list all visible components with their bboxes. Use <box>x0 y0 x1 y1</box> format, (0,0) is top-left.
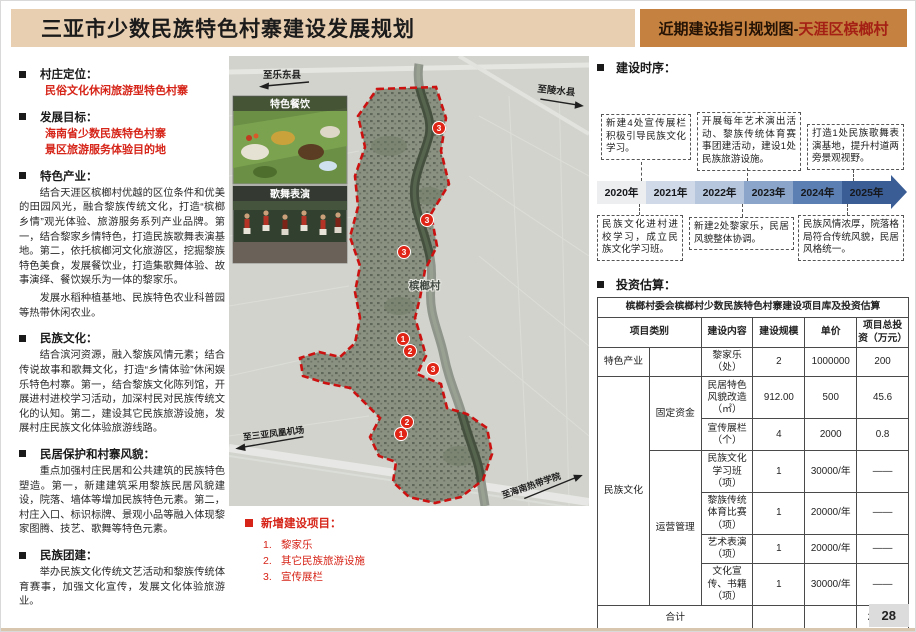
inset-photo-dance: 歌舞表演 <box>233 186 347 263</box>
connector-line <box>853 170 854 181</box>
table-row: 民族文化 固定资金 民居特色风貌改造（㎡） 912.00 500 45.6 <box>598 377 909 419</box>
svg-text:1: 1 <box>399 429 404 439</box>
cell-content: 黎族传统体育比赛（项） <box>701 493 753 535</box>
positioning-highlight: 民俗文化休闲旅游型特色村寨 <box>45 84 225 100</box>
year-segment: 2022年 <box>695 181 744 204</box>
col-header-unit: 单价 <box>805 318 857 348</box>
year-segment: 2025年 <box>842 181 891 204</box>
header-left-band: 三亚市少数民族特色村寨建设发展规划 <box>11 9 635 47</box>
aerial-map-canvas: 至乐东县 至陵水县 至三亚凤凰机场 至海南热带学院 槟榔村 <box>229 56 589 506</box>
header-right-prefix: 近期建设指引规划图- <box>658 18 798 39</box>
appearance-paragraph: 重点加强村庄民居和公共建筑的民族特色塑造。第一，新建建筑采用黎族民居风貌建设，院… <box>19 465 225 538</box>
cell-unit: 20000/年 <box>805 534 857 563</box>
investment-table: 槟榔村委会槟榔村少数民族特色村寨建设项目库及投资估算 项目类别 建设内容 建设规… <box>597 297 909 632</box>
cell-scale: 1 <box>753 534 805 563</box>
connector-line <box>641 162 642 181</box>
connector-line <box>847 204 848 215</box>
category-ethnic-culture: 民族文化 <box>598 377 650 606</box>
cell-scale: 4 <box>753 419 805 451</box>
section-header-goals: 发展目标： <box>19 109 225 125</box>
marker: 2 <box>401 416 414 429</box>
connector-line <box>747 168 748 181</box>
legend-title-row: 新增建设项目： <box>245 515 589 531</box>
connector-line <box>639 204 640 215</box>
page-title: 三亚市少数民族特色村寨建设发展规划 <box>41 13 415 43</box>
header-right-village: 天涯区槟榔村 <box>798 18 888 39</box>
marker: 2 <box>404 345 417 358</box>
section-header-culture: 民族文化： <box>19 330 225 346</box>
square-bullet-icon <box>597 64 604 71</box>
industry-paragraph-2: 发展水稻种植基地、民族特色农业科普园等热带休闲农业。 <box>19 292 225 321</box>
section-header-investment: 投资估算： <box>597 276 909 293</box>
cell-scale: 2 <box>753 348 805 377</box>
culture-paragraph: 结合滨河资源，融入黎族风情元素；结合传说故事和歌舞文化，打造“乡情体验”休闲娱乐… <box>19 349 225 437</box>
square-bullet-icon <box>597 281 604 288</box>
svg-text:至乐东县: 至乐东县 <box>263 69 302 81</box>
svg-text:3: 3 <box>437 123 442 133</box>
cell-unit: 20000/年 <box>805 493 857 535</box>
timeline-bar: 2020年 2021年 2022年 2023年 2024年 2025年 <box>597 181 907 204</box>
cell-total: —— <box>857 534 909 563</box>
legend-items: 1.黎家乐 2.其它民族旅游设施 3.宣传展栏 <box>263 538 589 585</box>
table-header-row: 项目类别 建设内容 建设规模 单价 项目总投资（万元） <box>598 318 909 348</box>
category-feature-industry: 特色产业 <box>598 348 650 377</box>
cell-content: 文化宣传、书籍（项） <box>701 564 753 606</box>
unity-paragraph: 举办民族文化传统文艺活动和黎族传统体育赛事，加强文化宣传，发展文化体验旅游业。 <box>19 566 225 610</box>
year-segment: 2023年 <box>744 181 793 204</box>
svg-text:2: 2 <box>408 346 413 356</box>
cell-content: 艺术表演（项） <box>701 534 753 563</box>
legend-item: 2.其它民族旅游设施 <box>263 554 589 570</box>
cell-scale: 912.00 <box>753 377 805 419</box>
square-bullet-icon <box>19 552 26 559</box>
marker: 3 <box>433 122 446 135</box>
goal-line-2: 景区旅游服务体验目的地 <box>45 143 225 159</box>
cell-content: 宣传展栏（个） <box>701 419 753 451</box>
right-panel: 建设时序： 新建4处宣传展栏积极引导民族文化学习。 开展每年艺术演出活动、黎族传… <box>597 59 909 632</box>
cell-unit: 1000000 <box>805 348 857 377</box>
cell-total: —— <box>857 564 909 606</box>
cell-scale: 1 <box>753 564 805 606</box>
bottom-accent-bar <box>1 628 916 631</box>
timeline-bottom-box-2: 新建2处黎家乐，民居风貌整体协调。 <box>689 217 794 250</box>
timeline-bottom-box-1: 民族文化进村进校学习，成立民族文化学习班。 <box>597 215 683 261</box>
cell-content: 黎家乐（处） <box>701 348 753 377</box>
construction-timeline: 新建4处宣传展栏积极引导民族文化学习。 开展每年艺术演出活动、黎族传统体育赛事团… <box>597 80 909 266</box>
col-header-category: 项目类别 <box>598 318 702 348</box>
svg-text:1: 1 <box>401 334 406 344</box>
square-bullet-icon <box>19 71 26 78</box>
col-header-scale: 建设规模 <box>753 318 805 348</box>
table-title: 槟榔村委会槟榔村少数民族特色村寨建设项目库及投资估算 <box>598 298 909 318</box>
cell-scale: 1 <box>753 451 805 493</box>
svg-text:3: 3 <box>431 364 436 374</box>
section-header-unity: 民族团建： <box>19 547 225 563</box>
svg-text:3: 3 <box>402 247 407 257</box>
year-segment: 2024年 <box>793 181 842 204</box>
village-name-label: 槟榔村 <box>409 279 441 292</box>
map-legend: 新增建设项目： 1.黎家乐 2.其它民族旅游设施 3.宣传展栏 <box>229 506 589 601</box>
slide-page: 三亚市少数民族特色村寨建设发展规划 近期建设指引规划图-天涯区槟榔村 村庄定位：… <box>0 0 916 632</box>
left-text-panel: 村庄定位： 民俗文化休闲旅游型特色村寨 发展目标： 海南省少数民族特色村寨 景区… <box>19 57 225 610</box>
marker: 1 <box>397 333 410 346</box>
timeline-arrow-icon <box>891 175 907 209</box>
cell-unit: 2000 <box>805 419 857 451</box>
col-header-content: 建设内容 <box>701 318 753 348</box>
connector-line <box>742 204 743 217</box>
goal-line-1: 海南省少数民族特色村寨 <box>45 127 225 143</box>
cell-unit: 500 <box>805 377 857 419</box>
section-header-timeline: 建设时序： <box>597 59 909 76</box>
cell-unit: 30000/年 <box>805 451 857 493</box>
svg-text:3: 3 <box>425 215 430 225</box>
legend-item: 1.黎家乐 <box>263 538 589 554</box>
square-bullet-icon <box>19 172 26 179</box>
subcategory-operation: 运营管理 <box>649 451 701 606</box>
square-bullet-icon <box>19 335 26 342</box>
cell-content: 民居特色风貌改造（㎡） <box>701 377 753 419</box>
cell-scale: 1 <box>753 493 805 535</box>
page-number: 28 <box>869 604 909 627</box>
marker: 1 <box>395 428 408 441</box>
industry-paragraph-1: 结合天涯区槟榔村优越的区位条件和优美的田园风光，融合黎族传统文化，打造“槟榔乡情… <box>19 187 225 289</box>
table-row: 特色产业 黎家乐（处） 2 1000000 200 <box>598 348 909 377</box>
marker: 3 <box>421 214 434 227</box>
cell-total: 45.6 <box>857 377 909 419</box>
cell-content: 民族文化学习班（项） <box>701 451 753 493</box>
inset-photo-food: 特色餐饮 <box>233 96 347 184</box>
section-header-industry: 特色产业： <box>19 168 225 184</box>
cell-total: 200 <box>857 348 909 377</box>
inset-food-title: 特色餐饮 <box>270 98 311 111</box>
timeline-bottom-box-3: 民族风情浓厚，院落格局符合传统风貌，民居风格统一。 <box>798 215 904 261</box>
section-header-appearance: 民居保护和村寨风貌： <box>19 446 225 462</box>
cell-total: —— <box>857 493 909 535</box>
timeline-top-box-1: 新建4处宣传展栏积极引导民族文化学习。 <box>601 114 691 160</box>
legend-item: 3.宣传展栏 <box>263 570 589 586</box>
square-bullet-icon <box>19 113 26 120</box>
subcategory-fixed-funds: 固定资金 <box>649 377 701 451</box>
section-header-positioning: 村庄定位： <box>19 66 225 82</box>
red-square-bullet-icon <box>245 519 253 527</box>
planning-map: 至乐东县 至陵水县 至三亚凤凰机场 至海南热带学院 槟榔村 <box>229 56 589 601</box>
timeline-top-box-2: 开展每年艺术演出活动、黎族传统体育赛事团建活动，建设1处民族旅游设施。 <box>697 112 801 171</box>
year-segment: 2020年 <box>597 181 646 204</box>
svg-text:2: 2 <box>405 417 410 427</box>
cell-total: —— <box>857 451 909 493</box>
year-segment: 2021年 <box>646 181 695 204</box>
marker: 3 <box>427 363 440 376</box>
timeline-top-box-3: 打造1处民族歌舞表演基地，提升村道两旁景观视野。 <box>807 124 904 170</box>
header-right-band: 近期建设指引规划图-天涯区槟榔村 <box>640 9 907 47</box>
legend-title: 新增建设项目： <box>261 515 342 531</box>
col-header-total: 项目总投资（万元） <box>857 318 909 348</box>
cell-total: 0.8 <box>857 419 909 451</box>
inset-dance-title: 歌舞表演 <box>270 188 310 201</box>
cell-unit: 30000/年 <box>805 564 857 606</box>
square-bullet-icon <box>19 450 26 457</box>
marker: 3 <box>398 246 411 259</box>
